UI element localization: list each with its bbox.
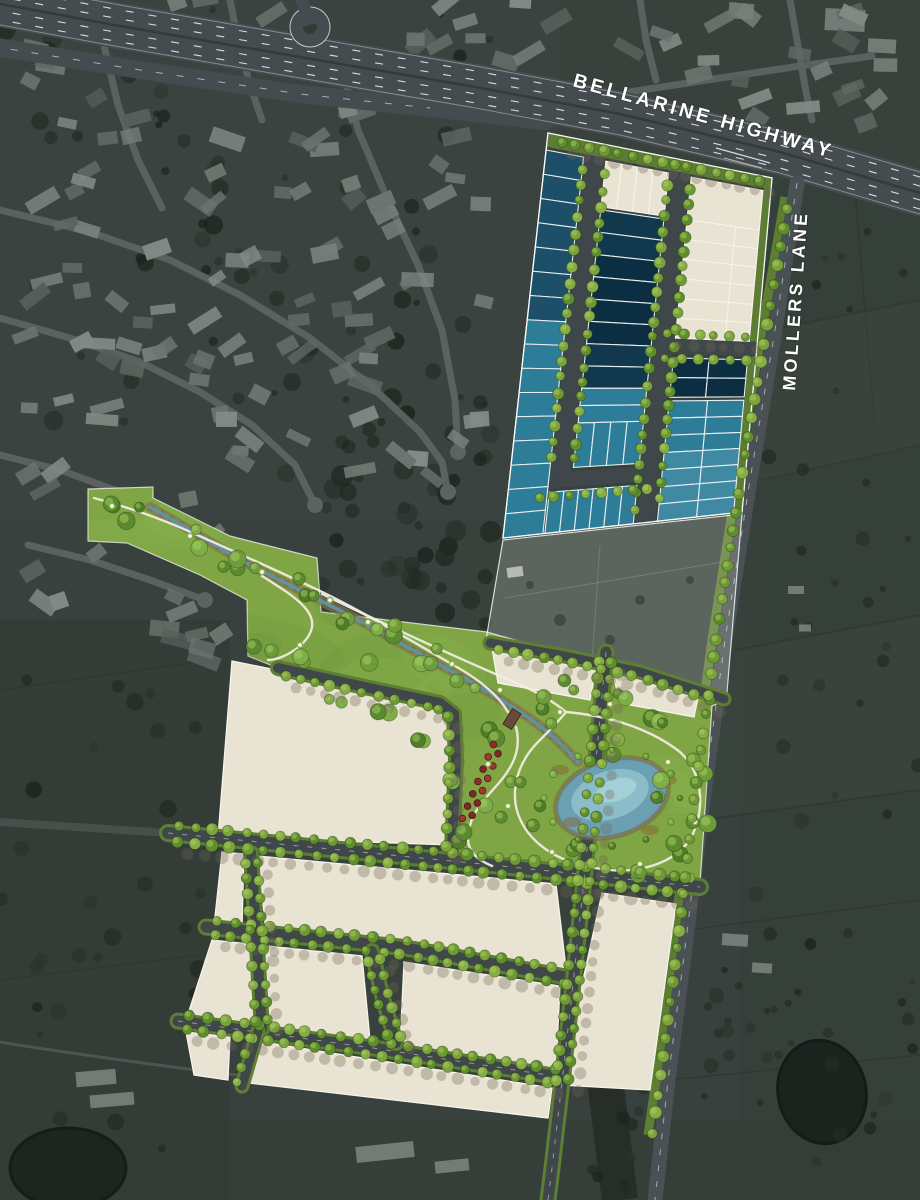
masterplan-svg: BELLARINE HIGHWAY MOLLERS LANE (0, 0, 920, 1200)
masterplan-map: BELLARINE HIGHWAY MOLLERS LANE (0, 0, 920, 1200)
